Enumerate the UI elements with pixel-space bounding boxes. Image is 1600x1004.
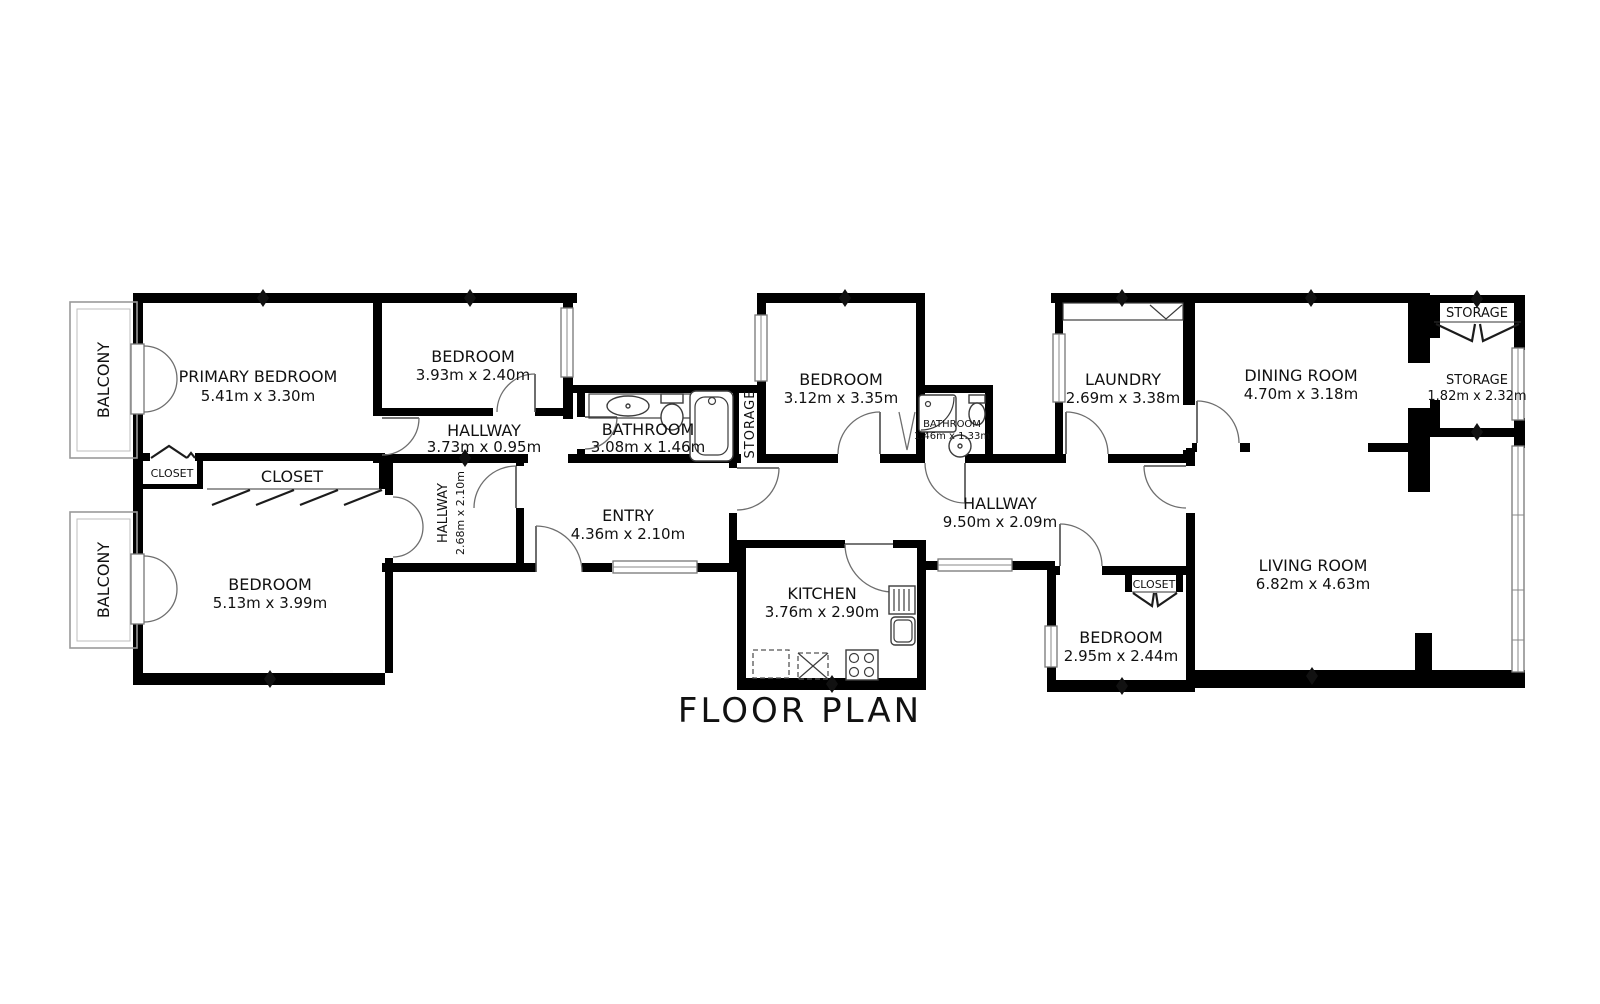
room-dims-bedroom-top: 3.93m x 2.40m bbox=[416, 366, 530, 384]
room-label-balcony-bottom: BALCONY bbox=[94, 542, 113, 619]
room-dims-hallway-vert: 2.68m x 2.10m bbox=[454, 471, 467, 555]
room-label-living-room: LIVING ROOM bbox=[1259, 556, 1368, 575]
room-label-primary-bedroom: PRIMARY BEDROOM bbox=[179, 367, 338, 386]
room-dims-living-room: 6.82m x 4.63m bbox=[1256, 575, 1370, 593]
room-label-hallway-vert: HALLWAY bbox=[436, 483, 451, 543]
room-dims-primary-bedroom: 5.41m x 3.30m bbox=[201, 387, 315, 405]
floor-plan-page: PRIMARY BEDROOM 5.41m x 3.30m BEDROOM 3.… bbox=[0, 0, 1600, 1004]
toilet-icon bbox=[661, 394, 683, 403]
room-dims-bathroom-small: 1.46m x 1.33m bbox=[914, 431, 990, 442]
room-dims-dining-room: 4.70m x 3.18m bbox=[1244, 385, 1358, 403]
floor-plan-canvas: PRIMARY BEDROOM 5.41m x 3.30m BEDROOM 3.… bbox=[0, 0, 1600, 1004]
labels-layer: PRIMARY BEDROOM 5.41m x 3.30m BEDROOM 3.… bbox=[94, 306, 1527, 731]
room-label-storage-mid: STORAGE bbox=[743, 390, 758, 459]
room-label-storage-niche: STORAGE bbox=[1446, 306, 1508, 321]
toilet-icon bbox=[969, 395, 985, 403]
room-dims-hallway-main: 9.50m x 2.09m bbox=[943, 513, 1057, 531]
room-dims-hallway-top: 3.73m x 0.95m bbox=[427, 438, 541, 456]
room-label-closet-right: CLOSET bbox=[1133, 578, 1176, 591]
room-label-bedroom-top: BEDROOM bbox=[431, 347, 515, 366]
page-title: FLOOR PLAN bbox=[678, 691, 922, 731]
room-label-bedroom-mid: BEDROOM bbox=[799, 370, 883, 389]
room-dims-bedroom-mid: 3.12m x 3.35m bbox=[784, 389, 898, 407]
room-label-bathroom-small: BATHROOM bbox=[923, 419, 981, 430]
room-label-closet-small: CLOSET bbox=[151, 467, 194, 480]
room-dims-bedroom-left: 5.13m x 3.99m bbox=[213, 594, 327, 612]
room-label-closet-wide: CLOSET bbox=[261, 467, 323, 486]
room-label-bathroom-main: BATHROOM bbox=[602, 420, 695, 439]
room-label-hallway-main: HALLWAY bbox=[963, 494, 1037, 513]
room-label-balcony-top: BALCONY bbox=[94, 342, 113, 419]
room-dims-laundry: 2.69m x 3.38m bbox=[1066, 389, 1180, 407]
room-label-storage-right: STORAGE bbox=[1446, 373, 1508, 388]
room-label-entry: ENTRY bbox=[602, 506, 654, 525]
drain-rack-icon bbox=[889, 586, 915, 614]
room-label-bedroom-left: BEDROOM bbox=[228, 575, 312, 594]
french-door-arc bbox=[144, 346, 177, 379]
room-label-laundry: LAUNDRY bbox=[1085, 370, 1161, 389]
room-dims-bedroom-small: 2.95m x 2.44m bbox=[1064, 647, 1178, 665]
room-dims-entry: 4.36m x 2.10m bbox=[571, 525, 685, 543]
room-label-dining-room: DINING ROOM bbox=[1244, 366, 1357, 385]
fixtures-layer bbox=[589, 303, 1183, 680]
room-dims-storage-right: 1.82m x 2.32m bbox=[1427, 389, 1526, 404]
walls-layer bbox=[133, 293, 1525, 692]
room-label-kitchen: KITCHEN bbox=[787, 584, 856, 603]
room-label-bedroom-small: BEDROOM bbox=[1079, 628, 1163, 647]
fridge-icon bbox=[753, 650, 789, 678]
room-dims-kitchen: 3.76m x 2.90m bbox=[765, 603, 879, 621]
room-dims-bathroom-main: 3.08m x 1.46m bbox=[591, 438, 705, 456]
